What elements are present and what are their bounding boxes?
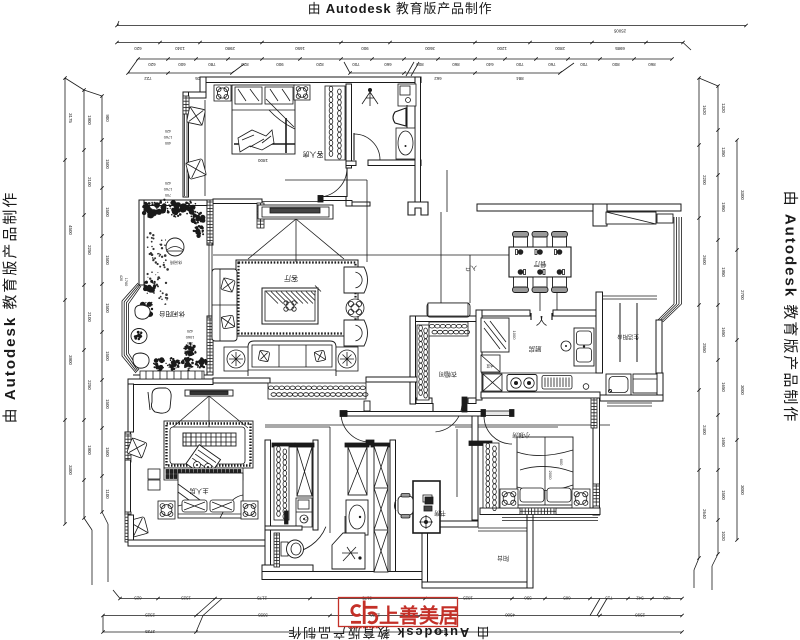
svg-text:3175: 3175 bbox=[68, 113, 73, 123]
svg-text:1900: 1900 bbox=[87, 115, 92, 125]
svg-text:900: 900 bbox=[105, 114, 110, 122]
svg-text:722: 722 bbox=[144, 76, 152, 81]
svg-text:1950: 1950 bbox=[721, 202, 726, 212]
svg-text:1650: 1650 bbox=[295, 46, 305, 51]
svg-text:2400: 2400 bbox=[702, 425, 707, 435]
svg-text:1350: 1350 bbox=[721, 147, 726, 157]
svg-text:阳台: 阳台 bbox=[497, 554, 509, 562]
svg-text:2600: 2600 bbox=[702, 255, 707, 265]
svg-text:1500: 1500 bbox=[105, 207, 110, 217]
svg-text:1500: 1500 bbox=[105, 255, 110, 265]
svg-text:550: 550 bbox=[524, 595, 532, 600]
svg-text:2000: 2000 bbox=[548, 471, 553, 481]
svg-text:厨房: 厨房 bbox=[529, 345, 542, 354]
svg-text:3900: 3900 bbox=[68, 355, 73, 365]
svg-text:2325: 2325 bbox=[145, 612, 155, 617]
svg-text:2175: 2175 bbox=[257, 595, 267, 600]
svg-text:1760: 1760 bbox=[164, 187, 172, 191]
svg-text:1320: 1320 bbox=[721, 103, 726, 113]
svg-text:900: 900 bbox=[276, 62, 284, 67]
svg-text:1620: 1620 bbox=[702, 105, 707, 115]
svg-text:700: 700 bbox=[516, 62, 524, 67]
svg-text:1650: 1650 bbox=[721, 437, 726, 447]
svg-text:1760: 1760 bbox=[124, 278, 128, 286]
svg-text:400: 400 bbox=[165, 141, 171, 145]
svg-text:由 Autodesk 教育版产品制作: 由 Autodesk 教育版产品制作 bbox=[782, 191, 799, 424]
svg-text:1020: 1020 bbox=[721, 531, 726, 541]
svg-text:700: 700 bbox=[352, 62, 360, 67]
svg-text:780: 780 bbox=[208, 62, 216, 67]
svg-text:1500: 1500 bbox=[105, 399, 110, 409]
svg-text:由 Autodesk 教育版产品制作: 由 Autodesk 教育版产品制作 bbox=[2, 191, 19, 424]
svg-text:水盆: 水盆 bbox=[486, 364, 494, 369]
svg-text:1200: 1200 bbox=[497, 46, 507, 51]
svg-text:542: 542 bbox=[636, 595, 644, 600]
svg-text:2700: 2700 bbox=[740, 290, 745, 300]
svg-text:2725: 2725 bbox=[145, 629, 155, 634]
svg-text:休闲阳台: 休闲阳台 bbox=[159, 310, 185, 319]
svg-text:2100: 2100 bbox=[87, 312, 92, 322]
svg-text:入户: 入户 bbox=[465, 264, 477, 272]
svg-text:1500: 1500 bbox=[721, 490, 726, 500]
svg-text:620: 620 bbox=[134, 46, 142, 51]
svg-text:小孩房: 小孩房 bbox=[512, 431, 530, 439]
svg-text:1900: 1900 bbox=[87, 445, 92, 455]
svg-text:1060: 1060 bbox=[186, 335, 194, 339]
svg-text:625: 625 bbox=[134, 595, 142, 600]
svg-text:4500: 4500 bbox=[505, 612, 515, 617]
svg-text:2250: 2250 bbox=[87, 245, 92, 255]
svg-text:860: 860 bbox=[452, 62, 460, 67]
svg-text:1500: 1500 bbox=[105, 447, 110, 457]
svg-text:2550: 2550 bbox=[702, 343, 707, 353]
svg-text:占: 占 bbox=[304, 517, 308, 523]
svg-text:3600: 3600 bbox=[425, 46, 435, 51]
svg-text:1825: 1825 bbox=[463, 595, 473, 600]
svg-text:700: 700 bbox=[580, 62, 588, 67]
svg-text:600: 600 bbox=[178, 62, 186, 67]
svg-text:2640: 2640 bbox=[702, 509, 707, 519]
svg-text:1500: 1500 bbox=[105, 159, 110, 169]
svg-text:3355: 3355 bbox=[258, 612, 268, 617]
svg-text:420: 420 bbox=[119, 275, 123, 281]
svg-text:12005: 12005 bbox=[433, 629, 446, 634]
svg-text:420: 420 bbox=[165, 129, 171, 133]
svg-text:主人房: 主人房 bbox=[189, 487, 209, 496]
svg-text:420: 420 bbox=[187, 329, 193, 333]
svg-text:665: 665 bbox=[563, 595, 571, 600]
svg-text:客厅: 客厅 bbox=[284, 274, 298, 283]
svg-text:2980: 2980 bbox=[225, 46, 235, 51]
svg-text:6985: 6985 bbox=[615, 46, 625, 51]
svg-text:1650: 1650 bbox=[721, 382, 726, 392]
svg-text:860: 860 bbox=[648, 62, 656, 67]
svg-text:3000: 3000 bbox=[740, 385, 745, 395]
svg-text:2250: 2250 bbox=[87, 380, 92, 390]
svg-text:1760: 1760 bbox=[164, 135, 172, 139]
svg-text:1340: 1340 bbox=[175, 46, 185, 51]
svg-text:25005: 25005 bbox=[613, 29, 626, 34]
svg-text:衣帽间: 衣帽间 bbox=[439, 370, 457, 378]
svg-text:书房: 书房 bbox=[434, 509, 446, 517]
svg-text:640: 640 bbox=[486, 62, 494, 67]
svg-text:3300: 3300 bbox=[740, 190, 745, 200]
svg-text:660: 660 bbox=[384, 62, 392, 67]
svg-text:820: 820 bbox=[241, 62, 249, 67]
svg-text:820: 820 bbox=[316, 62, 324, 67]
svg-text:1500: 1500 bbox=[105, 303, 110, 313]
svg-text:620: 620 bbox=[148, 62, 156, 67]
svg-text:420: 420 bbox=[663, 595, 671, 600]
svg-text:2800: 2800 bbox=[555, 46, 565, 51]
svg-text:1800: 1800 bbox=[257, 158, 268, 163]
svg-text:3300: 3300 bbox=[68, 465, 73, 475]
svg-text:1100: 1100 bbox=[105, 489, 110, 499]
svg-text:600: 600 bbox=[559, 459, 564, 466]
svg-text:900: 900 bbox=[361, 46, 369, 51]
svg-text:420: 420 bbox=[165, 181, 171, 185]
svg-text:4500: 4500 bbox=[68, 225, 73, 235]
svg-text:由 Autodesk 教育版产品制作: 由 Autodesk 教育版产品制作 bbox=[308, 1, 493, 16]
svg-text:1650: 1650 bbox=[721, 327, 726, 337]
svg-text:1950: 1950 bbox=[721, 267, 726, 277]
svg-text:760: 760 bbox=[548, 62, 556, 67]
svg-text:884: 884 bbox=[516, 76, 524, 81]
svg-text:1000: 1000 bbox=[512, 331, 517, 341]
svg-text:2100: 2100 bbox=[87, 177, 92, 187]
svg-text:2593: 2593 bbox=[635, 612, 645, 617]
svg-text:上善美居: 上善美居 bbox=[379, 604, 459, 628]
svg-text:生活阳台: 生活阳台 bbox=[617, 333, 640, 341]
svg-text:800: 800 bbox=[612, 62, 620, 67]
svg-text:1500: 1500 bbox=[105, 351, 110, 361]
svg-text:662: 662 bbox=[434, 76, 442, 81]
svg-text:餐厅: 餐厅 bbox=[533, 260, 547, 269]
svg-text:700: 700 bbox=[165, 193, 171, 197]
svg-text:休闲椅: 休闲椅 bbox=[170, 260, 182, 266]
svg-text:2200: 2200 bbox=[702, 175, 707, 185]
svg-text:客人房: 客人房 bbox=[303, 150, 324, 159]
svg-text:3000: 3000 bbox=[740, 485, 745, 495]
svg-text:1525: 1525 bbox=[181, 595, 191, 600]
